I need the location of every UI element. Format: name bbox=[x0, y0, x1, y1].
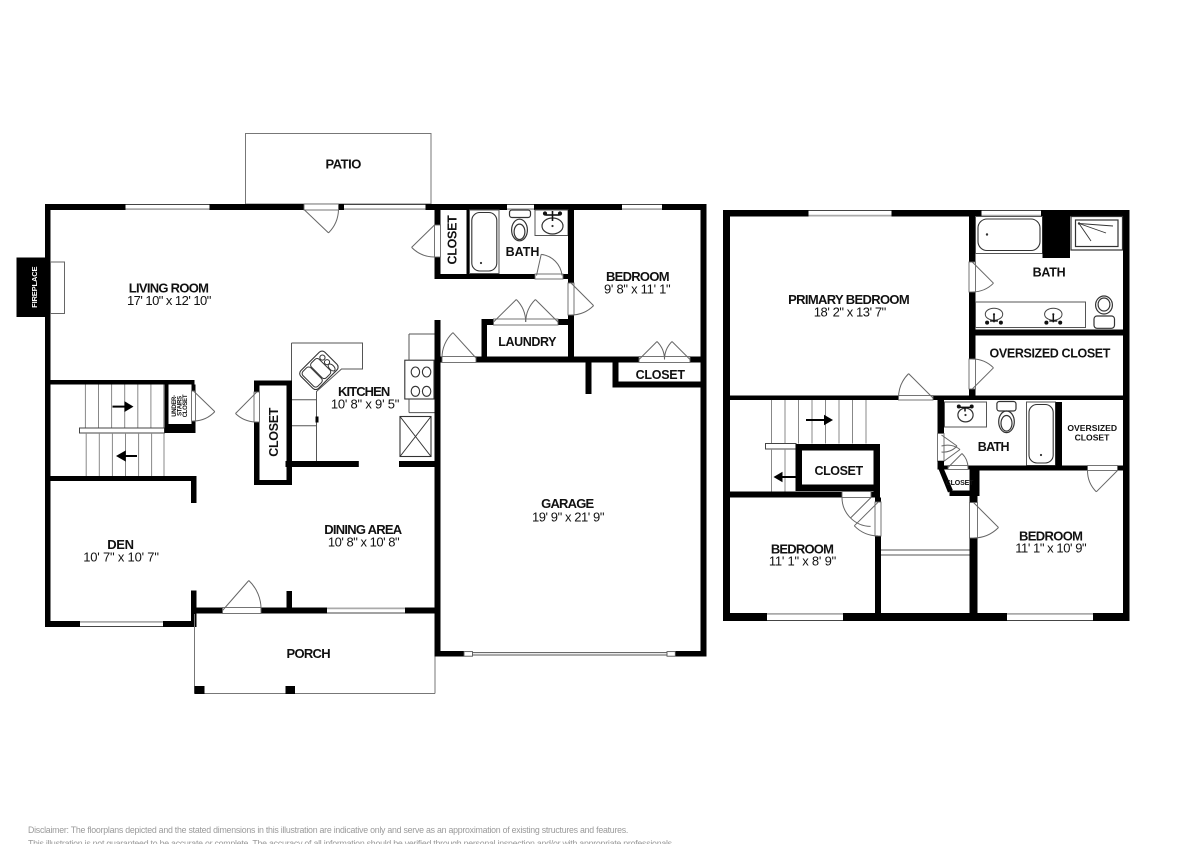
svg-text:OVERSIZED CLOSET: OVERSIZED CLOSET bbox=[990, 347, 1111, 361]
svg-text:CLOSET: CLOSET bbox=[946, 480, 974, 487]
svg-text:BATH: BATH bbox=[506, 245, 540, 259]
svg-text:CLOSET: CLOSET bbox=[183, 394, 189, 417]
svg-text:19' 9" x 21' 9": 19' 9" x 21' 9" bbox=[532, 509, 605, 524]
svg-text:BATH: BATH bbox=[1033, 266, 1066, 280]
svg-text:BATH: BATH bbox=[978, 440, 1010, 454]
svg-text:PATIO: PATIO bbox=[326, 157, 362, 172]
svg-text:11' 1" x 10' 9": 11' 1" x 10' 9" bbox=[1015, 541, 1087, 556]
svg-text:LAUNDRY: LAUNDRY bbox=[498, 335, 557, 349]
svg-text:CLOSET: CLOSET bbox=[636, 368, 686, 382]
svg-text:18' 2" x 13' 7": 18' 2" x 13' 7" bbox=[814, 305, 887, 320]
svg-text:11' 1" x 8' 9": 11' 1" x 8' 9" bbox=[769, 554, 837, 569]
svg-text:10' 8" x 10' 8": 10' 8" x 10' 8" bbox=[328, 535, 400, 550]
svg-text:10' 7" x 10' 7": 10' 7" x 10' 7" bbox=[83, 550, 159, 565]
svg-text:CLOSET: CLOSET bbox=[446, 215, 460, 265]
svg-text:FIREPLACE: FIREPLACE bbox=[30, 266, 39, 307]
svg-text:PORCH: PORCH bbox=[286, 646, 330, 661]
svg-text:9' 8" x 11' 1": 9' 8" x 11' 1" bbox=[604, 281, 671, 296]
svg-text:CLOSET: CLOSET bbox=[814, 464, 863, 478]
svg-text:17' 10" x 12' 10": 17' 10" x 12' 10" bbox=[127, 293, 212, 308]
svg-text:CLOSET: CLOSET bbox=[1075, 433, 1111, 443]
svg-text:Disclaimer: The floorplans dep: Disclaimer: The floorplans depicted and … bbox=[28, 825, 628, 835]
svg-text:This illustration is not guara: This illustration is not guaranteed to b… bbox=[28, 839, 674, 844]
svg-text:CLOSET: CLOSET bbox=[267, 407, 281, 457]
svg-text:10' 8" x 9' 5": 10' 8" x 9' 5" bbox=[331, 396, 400, 411]
